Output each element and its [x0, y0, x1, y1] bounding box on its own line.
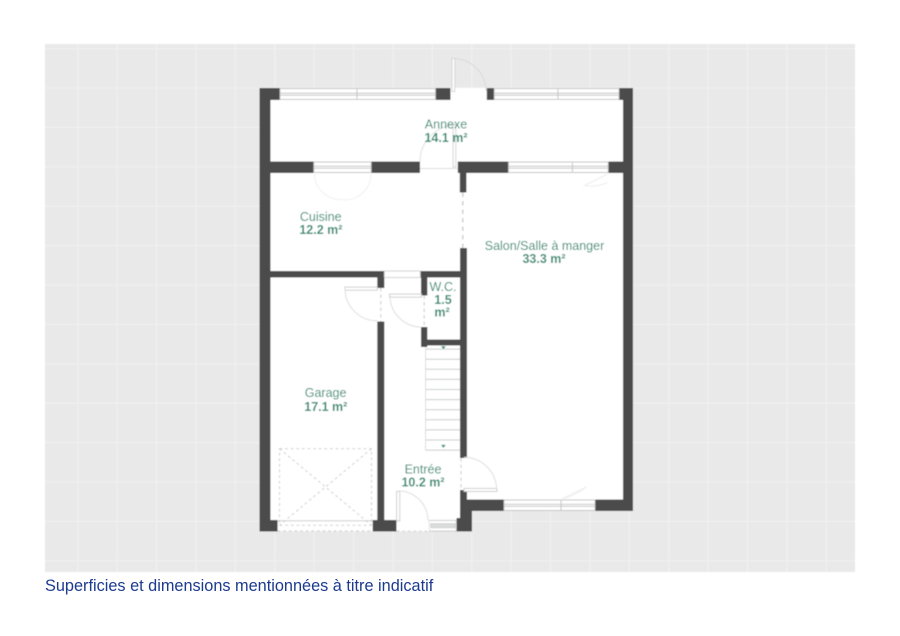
svg-text:33.3 m²: 33.3 m²: [522, 252, 565, 266]
svg-text:m²: m²: [434, 306, 449, 320]
svg-text:Salon/Salle à manger: Salon/Salle à manger: [485, 239, 605, 253]
svg-text:Superficies et dimensions ment: Superficies et dimensions mentionnées à …: [45, 577, 434, 595]
svg-text:Annexe: Annexe: [425, 118, 467, 132]
svg-text:Garage: Garage: [305, 386, 347, 400]
svg-text:14.1 m²: 14.1 m²: [424, 131, 467, 145]
svg-text:10.2 m²: 10.2 m²: [401, 476, 444, 490]
svg-text:12.2 m²: 12.2 m²: [299, 223, 342, 237]
svg-text:Cuisine: Cuisine: [300, 210, 342, 224]
svg-text:Entrée: Entrée: [405, 463, 442, 477]
svg-text:17.1 m²: 17.1 m²: [304, 400, 347, 414]
